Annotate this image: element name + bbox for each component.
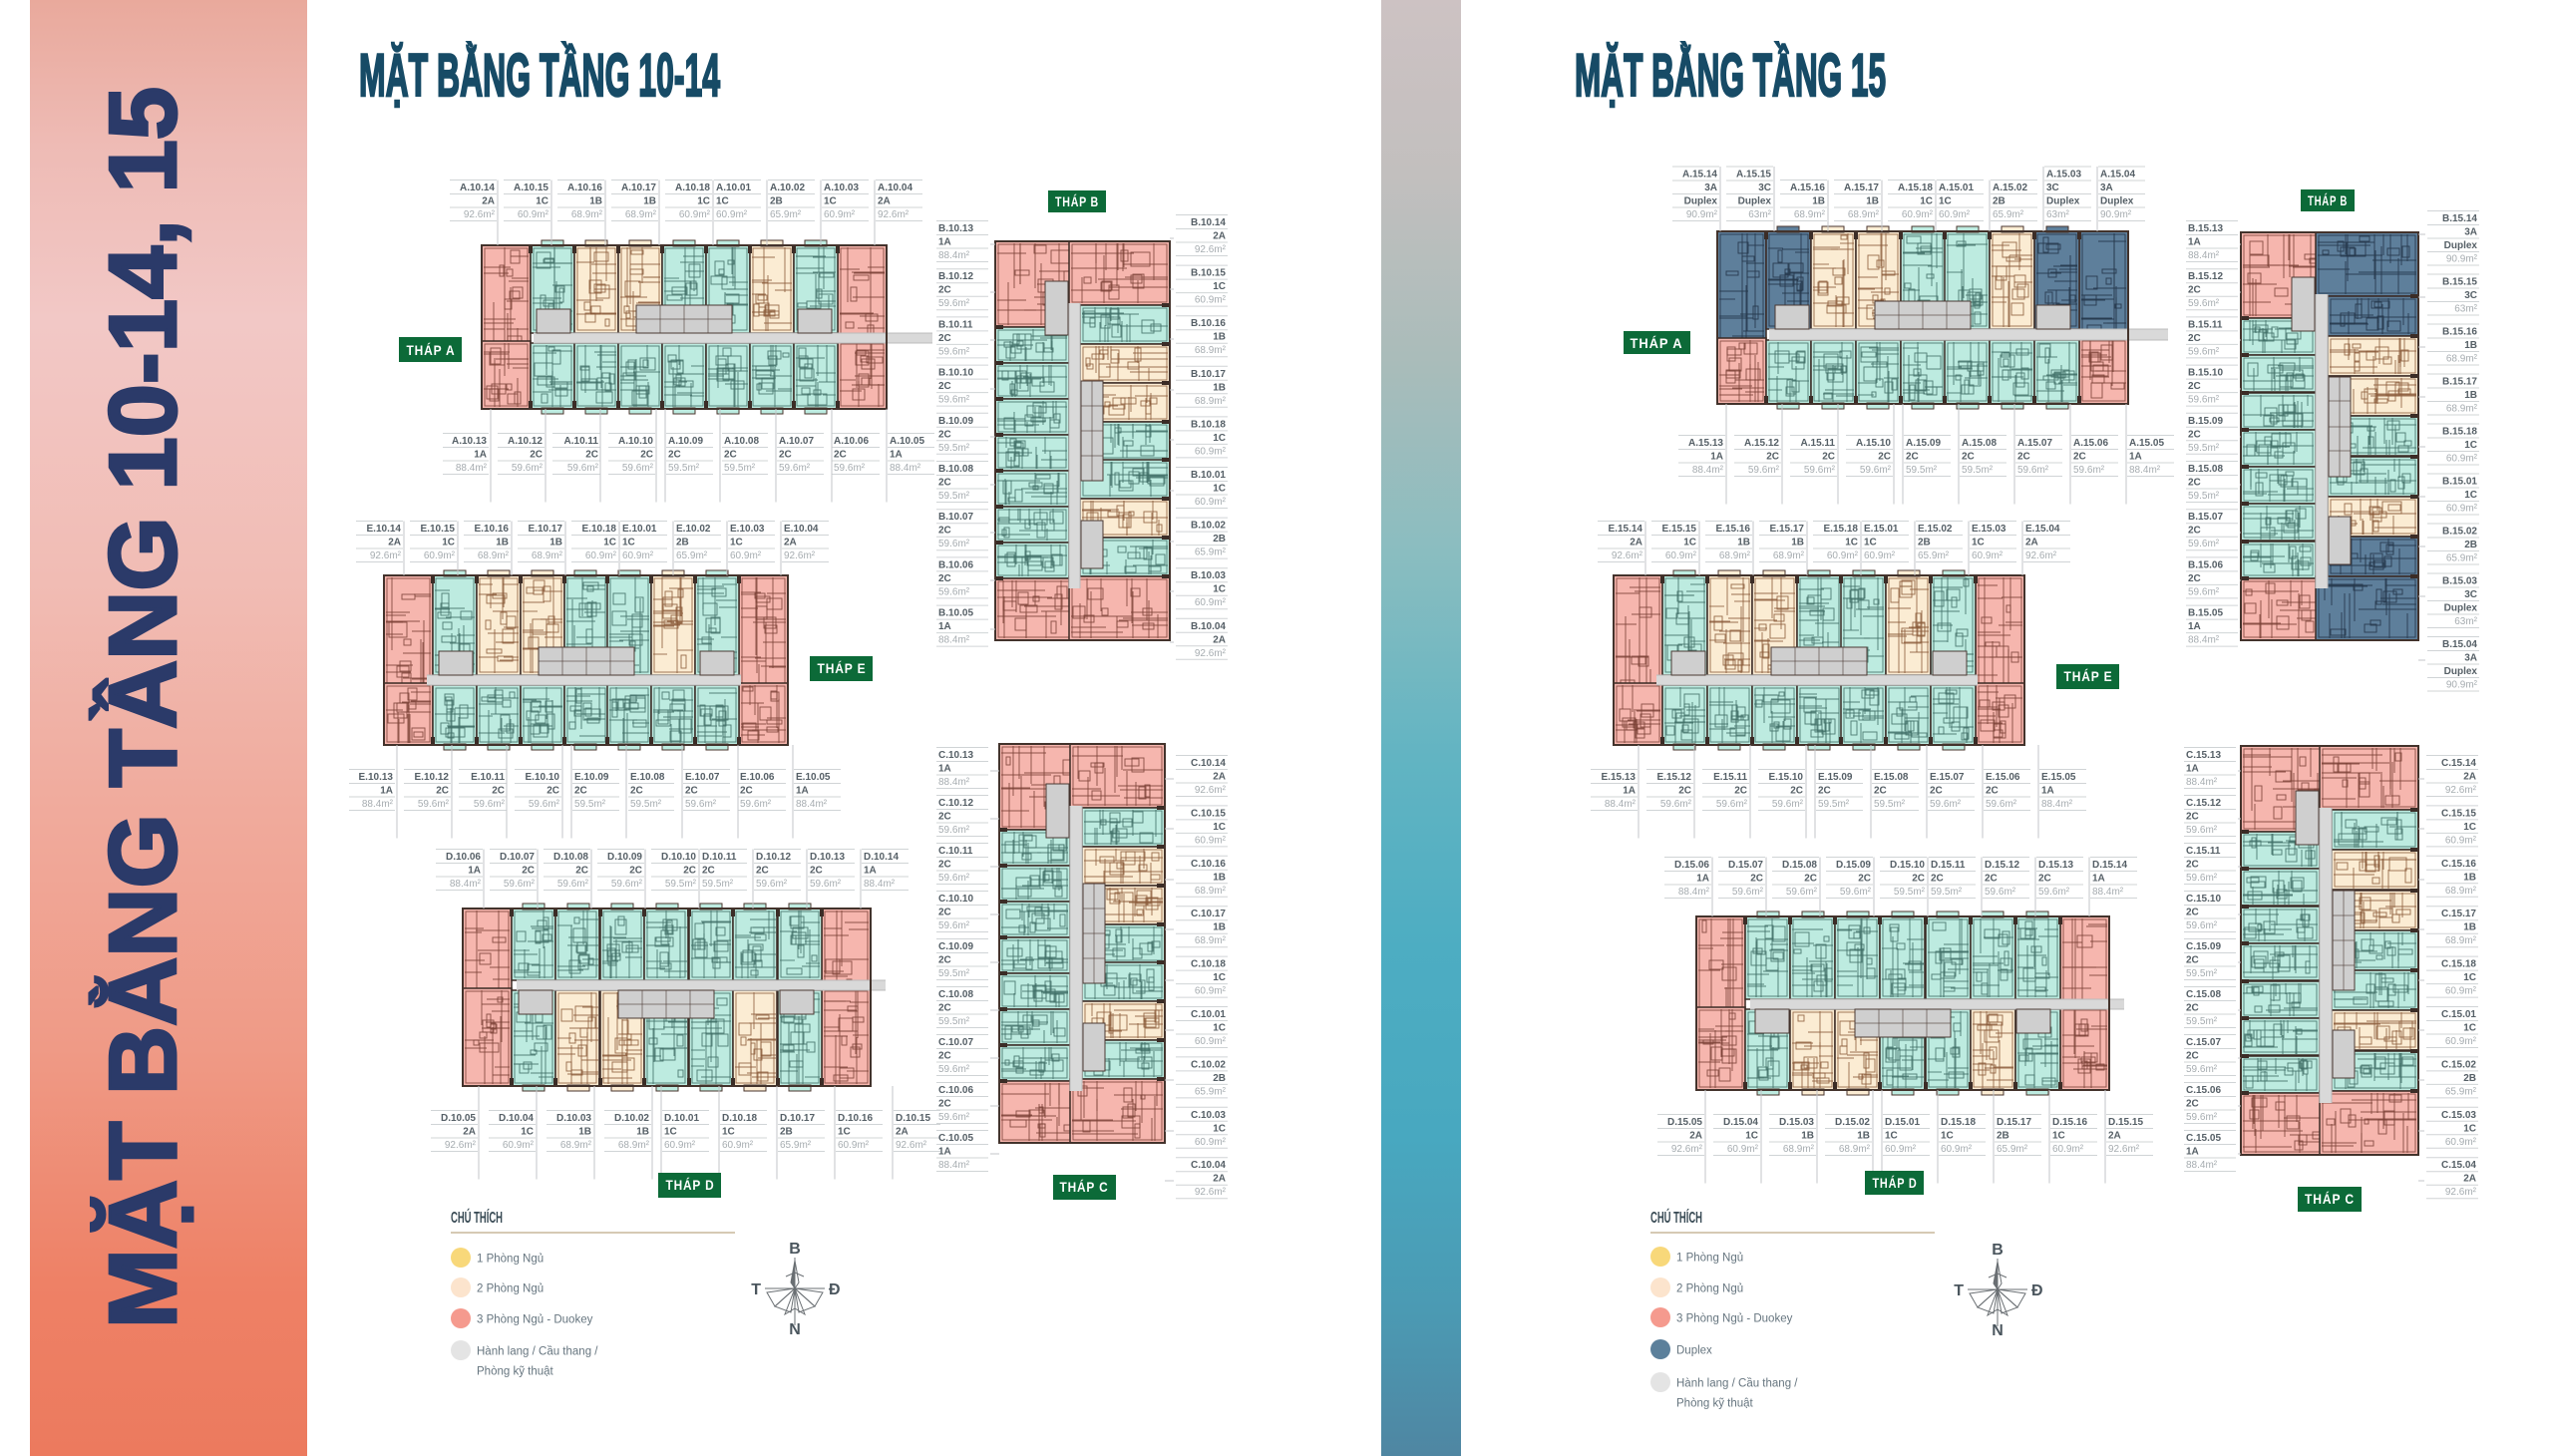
svg-text:1B: 1B bbox=[1213, 922, 1226, 933]
svg-text:E.10.13: E.10.13 bbox=[359, 772, 394, 783]
svg-text:60.9m²: 60.9m² bbox=[1864, 550, 1896, 561]
svg-text:60.9m²: 60.9m² bbox=[2052, 1144, 2084, 1155]
svg-text:3A: 3A bbox=[2100, 182, 2113, 193]
svg-text:1B: 1B bbox=[1866, 196, 1879, 207]
svg-text:A.15.08: A.15.08 bbox=[1962, 438, 1997, 449]
svg-text:2C: 2C bbox=[629, 866, 642, 877]
svg-text:59.6m²: 59.6m² bbox=[1732, 887, 1764, 898]
svg-text:60.9m²: 60.9m² bbox=[1195, 986, 1227, 997]
svg-text:A.15.06: A.15.06 bbox=[2073, 438, 2108, 449]
svg-text:A.10.16: A.10.16 bbox=[567, 182, 602, 193]
svg-text:1C: 1C bbox=[722, 1127, 735, 1138]
svg-text:68.9m²: 68.9m² bbox=[1839, 1144, 1871, 1155]
svg-text:A.15.12: A.15.12 bbox=[1744, 438, 1779, 449]
svg-text:D.15.18: D.15.18 bbox=[1941, 1117, 1976, 1128]
svg-text:2C: 2C bbox=[938, 908, 951, 918]
svg-text:3C: 3C bbox=[1758, 182, 1771, 193]
svg-text:59.6m²: 59.6m² bbox=[1748, 465, 1780, 476]
svg-text:59.6m²: 59.6m² bbox=[1985, 887, 2016, 898]
svg-text:A.15.14: A.15.14 bbox=[1682, 170, 1717, 181]
svg-text:59.6m²: 59.6m² bbox=[557, 879, 589, 890]
svg-text:E.10.12: E.10.12 bbox=[415, 772, 450, 783]
svg-text:59.5m²: 59.5m² bbox=[938, 968, 970, 979]
svg-text:1C: 1C bbox=[1213, 972, 1226, 983]
svg-text:59.5m²: 59.5m² bbox=[1818, 799, 1850, 810]
svg-text:E.15.02: E.15.02 bbox=[1918, 524, 1953, 535]
svg-text:59.6m²: 59.6m² bbox=[1786, 887, 1818, 898]
svg-text:2C: 2C bbox=[724, 450, 737, 461]
svg-text:A.15.13: A.15.13 bbox=[1688, 438, 1723, 449]
svg-text:59.6m²: 59.6m² bbox=[938, 1112, 970, 1123]
svg-text:2B: 2B bbox=[1918, 538, 1931, 548]
svg-text:88.4m²: 88.4m² bbox=[1605, 799, 1637, 810]
svg-text:2B: 2B bbox=[676, 538, 689, 548]
svg-text:68.9m²: 68.9m² bbox=[560, 1140, 592, 1151]
svg-text:68.9m²: 68.9m² bbox=[1794, 209, 1826, 220]
svg-text:B.10.11: B.10.11 bbox=[938, 319, 973, 330]
svg-text:1C: 1C bbox=[1213, 433, 1226, 444]
svg-text:59.6m²: 59.6m² bbox=[938, 873, 970, 884]
svg-text:E.15.09: E.15.09 bbox=[1818, 772, 1853, 783]
svg-text:1C: 1C bbox=[716, 196, 729, 207]
svg-text:D.15.10: D.15.10 bbox=[1890, 860, 1925, 871]
svg-text:E.15.12: E.15.12 bbox=[1657, 772, 1692, 783]
svg-text:60.9m²: 60.9m² bbox=[838, 1140, 870, 1151]
svg-text:C.10.18: C.10.18 bbox=[1191, 959, 1226, 970]
svg-text:2A: 2A bbox=[388, 538, 401, 548]
svg-text:2C: 2C bbox=[938, 429, 951, 440]
svg-text:59.5m²: 59.5m² bbox=[938, 443, 970, 454]
svg-text:1B: 1B bbox=[549, 538, 562, 548]
svg-text:90.9m²: 90.9m² bbox=[1686, 209, 1718, 220]
svg-text:D.10.04: D.10.04 bbox=[499, 1113, 534, 1124]
svg-text:1A: 1A bbox=[938, 621, 951, 632]
svg-text:E.10.05: E.10.05 bbox=[796, 772, 831, 783]
svg-text:1C: 1C bbox=[1920, 196, 1933, 207]
svg-text:D.10.15: D.10.15 bbox=[896, 1113, 930, 1124]
svg-text:B.10.14: B.10.14 bbox=[1191, 217, 1226, 228]
svg-text:2C: 2C bbox=[492, 786, 505, 797]
svg-text:2C: 2C bbox=[938, 955, 951, 966]
svg-text:59.5m²: 59.5m² bbox=[938, 1016, 970, 1027]
svg-text:92.6m²: 92.6m² bbox=[878, 209, 910, 220]
svg-text:D.15.11: D.15.11 bbox=[1931, 860, 1966, 871]
svg-text:2A: 2A bbox=[896, 1127, 909, 1138]
svg-text:59.6m²: 59.6m² bbox=[810, 879, 842, 890]
svg-text:1A: 1A bbox=[796, 786, 809, 797]
svg-text:92.6m²: 92.6m² bbox=[1195, 1187, 1227, 1198]
svg-text:2C: 2C bbox=[756, 866, 769, 877]
svg-text:60.9m²: 60.9m² bbox=[1902, 209, 1934, 220]
svg-text:C.10.01: C.10.01 bbox=[1191, 1009, 1226, 1020]
svg-text:1C: 1C bbox=[1213, 1023, 1226, 1034]
svg-text:2C: 2C bbox=[938, 812, 951, 823]
svg-text:2C: 2C bbox=[1818, 786, 1831, 797]
svg-text:63m²: 63m² bbox=[1748, 209, 1771, 220]
svg-text:65.9m²: 65.9m² bbox=[1195, 1086, 1227, 1097]
svg-text:A.10.10: A.10.10 bbox=[618, 436, 653, 447]
svg-text:C.10.08: C.10.08 bbox=[938, 989, 973, 1000]
svg-text:88.4m²: 88.4m² bbox=[2092, 887, 2124, 898]
svg-text:D.15.13: D.15.13 bbox=[2038, 860, 2073, 871]
svg-text:60.9m²: 60.9m² bbox=[1195, 1036, 1227, 1047]
svg-text:92.6m²: 92.6m² bbox=[464, 209, 496, 220]
svg-text:B.10.05: B.10.05 bbox=[938, 608, 973, 619]
svg-text:1C: 1C bbox=[1885, 1131, 1898, 1142]
svg-text:2C: 2C bbox=[1790, 786, 1803, 797]
svg-text:59.6m²: 59.6m² bbox=[567, 463, 599, 474]
svg-text:1A: 1A bbox=[468, 866, 481, 877]
svg-text:2C: 2C bbox=[530, 450, 543, 461]
svg-text:2C: 2C bbox=[2017, 452, 2030, 463]
svg-text:E.15.13: E.15.13 bbox=[1602, 772, 1637, 783]
svg-text:60.9m²: 60.9m² bbox=[503, 1140, 535, 1151]
svg-text:59.6m²: 59.6m² bbox=[938, 586, 970, 597]
svg-text:C.10.02: C.10.02 bbox=[1191, 1059, 1226, 1070]
svg-text:2A: 2A bbox=[482, 196, 495, 207]
svg-text:C.10.12: C.10.12 bbox=[938, 798, 973, 809]
svg-text:2C: 2C bbox=[938, 478, 951, 489]
svg-text:D.10.18: D.10.18 bbox=[722, 1113, 757, 1124]
svg-text:D.15.12: D.15.12 bbox=[1985, 860, 2019, 871]
svg-text:2C: 2C bbox=[779, 450, 792, 461]
svg-text:E.10.06: E.10.06 bbox=[740, 772, 775, 783]
svg-text:A.10.02: A.10.02 bbox=[770, 182, 805, 193]
svg-text:D.10.06: D.10.06 bbox=[446, 852, 481, 863]
svg-text:65.9m²: 65.9m² bbox=[676, 550, 708, 561]
svg-text:60.9m²: 60.9m² bbox=[1195, 446, 1227, 457]
svg-text:1B: 1B bbox=[589, 196, 602, 207]
svg-text:2C: 2C bbox=[668, 450, 681, 461]
svg-text:1C: 1C bbox=[697, 196, 710, 207]
svg-text:59.5m²: 59.5m² bbox=[1874, 799, 1906, 810]
svg-text:59.6m²: 59.6m² bbox=[1986, 799, 2017, 810]
svg-text:E.15.01: E.15.01 bbox=[1864, 524, 1899, 535]
svg-text:E.10.07: E.10.07 bbox=[685, 772, 720, 783]
svg-text:E.10.14: E.10.14 bbox=[367, 524, 402, 535]
svg-text:1A: 1A bbox=[864, 866, 877, 877]
svg-text:59.6m²: 59.6m² bbox=[1660, 799, 1692, 810]
svg-text:B.10.18: B.10.18 bbox=[1191, 419, 1226, 430]
svg-text:C.10.17: C.10.17 bbox=[1191, 909, 1226, 919]
svg-text:59.5m²: 59.5m² bbox=[1962, 465, 1994, 476]
svg-text:MẶT BẰNG TẦNG 15: MẶT BẰNG TẦNG 15 bbox=[1575, 42, 1886, 109]
svg-text:A.10.01: A.10.01 bbox=[716, 182, 751, 193]
svg-text:88.4m²: 88.4m² bbox=[796, 799, 828, 810]
svg-text:E.10.15: E.10.15 bbox=[421, 524, 456, 535]
svg-text:A.15.18: A.15.18 bbox=[1898, 182, 1933, 193]
svg-text:D.15.17: D.15.17 bbox=[1997, 1117, 2031, 1128]
svg-text:2C: 2C bbox=[1906, 452, 1919, 463]
svg-text:1B: 1B bbox=[1857, 1131, 1870, 1142]
svg-text:1B: 1B bbox=[1801, 1131, 1814, 1142]
svg-text:D.10.11: D.10.11 bbox=[702, 852, 737, 863]
svg-text:60.9m²: 60.9m² bbox=[722, 1140, 754, 1151]
svg-text:2C: 2C bbox=[685, 786, 698, 797]
svg-text:B.10.17: B.10.17 bbox=[1191, 369, 1226, 380]
svg-text:C.10.07: C.10.07 bbox=[938, 1037, 973, 1048]
svg-text:C.10.10: C.10.10 bbox=[938, 894, 973, 905]
svg-text:65.9m²: 65.9m² bbox=[1918, 550, 1950, 561]
svg-text:1C: 1C bbox=[536, 196, 548, 207]
svg-text:88.4m²: 88.4m² bbox=[864, 879, 896, 890]
svg-text:59.6m²: 59.6m² bbox=[756, 879, 788, 890]
svg-text:C.10.15: C.10.15 bbox=[1191, 808, 1226, 819]
svg-text:2C: 2C bbox=[938, 333, 951, 344]
svg-text:2A: 2A bbox=[1213, 231, 1226, 242]
svg-text:60.9m²: 60.9m² bbox=[1827, 550, 1859, 561]
svg-text:B.10.16: B.10.16 bbox=[1191, 318, 1226, 329]
svg-text:68.9m²: 68.9m² bbox=[625, 209, 657, 220]
svg-text:2C: 2C bbox=[938, 1003, 951, 1014]
svg-text:2C: 2C bbox=[630, 786, 643, 797]
svg-text:1B: 1B bbox=[1737, 538, 1750, 548]
svg-text:92.6m²: 92.6m² bbox=[1195, 648, 1227, 659]
svg-text:2C: 2C bbox=[938, 381, 951, 392]
svg-text:A.15.07: A.15.07 bbox=[2017, 438, 2052, 449]
svg-text:D.15.06: D.15.06 bbox=[1674, 860, 1709, 871]
svg-text:1B: 1B bbox=[1213, 382, 1226, 393]
svg-text:2C: 2C bbox=[547, 786, 559, 797]
svg-text:1C: 1C bbox=[622, 538, 635, 548]
svg-text:1C: 1C bbox=[824, 196, 837, 207]
svg-text:A.10.06: A.10.06 bbox=[834, 436, 869, 447]
svg-text:D.10.09: D.10.09 bbox=[607, 852, 642, 863]
svg-text:92.6m²: 92.6m² bbox=[370, 550, 402, 561]
svg-text:E.10.04: E.10.04 bbox=[784, 524, 819, 535]
svg-text:88.4m²: 88.4m² bbox=[938, 635, 970, 646]
svg-text:59.6m²: 59.6m² bbox=[685, 799, 717, 810]
svg-text:1A: 1A bbox=[2129, 452, 2142, 463]
svg-text:2C: 2C bbox=[1985, 874, 1998, 885]
svg-text:3A: 3A bbox=[1704, 182, 1717, 193]
svg-text:D.10.10: D.10.10 bbox=[661, 852, 696, 863]
svg-text:2C: 2C bbox=[574, 786, 587, 797]
svg-text:68.9m²: 68.9m² bbox=[1195, 935, 1227, 946]
svg-text:88.4m²: 88.4m² bbox=[1678, 887, 1710, 898]
svg-text:1A: 1A bbox=[938, 764, 951, 775]
svg-text:D.10.16: D.10.16 bbox=[838, 1113, 873, 1124]
svg-text:B.10.01: B.10.01 bbox=[1191, 470, 1226, 481]
svg-text:D.15.07: D.15.07 bbox=[1728, 860, 1763, 871]
svg-text:A.15.16: A.15.16 bbox=[1790, 182, 1825, 193]
svg-text:E.10.16: E.10.16 bbox=[475, 524, 510, 535]
svg-text:B.10.04: B.10.04 bbox=[1191, 621, 1226, 632]
svg-text:1C: 1C bbox=[664, 1127, 677, 1138]
svg-text:C.10.05: C.10.05 bbox=[938, 1133, 973, 1144]
svg-text:E.10.08: E.10.08 bbox=[630, 772, 665, 783]
svg-text:A.15.05: A.15.05 bbox=[2129, 438, 2164, 449]
svg-text:59.6m²: 59.6m² bbox=[779, 463, 811, 474]
svg-text:D.15.15: D.15.15 bbox=[2108, 1117, 2143, 1128]
svg-text:60.9m²: 60.9m² bbox=[1195, 497, 1227, 508]
svg-text:59.6m²: 59.6m² bbox=[1716, 799, 1748, 810]
svg-text:1C: 1C bbox=[442, 538, 455, 548]
svg-text:1B: 1B bbox=[636, 1127, 649, 1138]
svg-text:60.9m²: 60.9m² bbox=[1195, 295, 1227, 306]
svg-text:59.5m²: 59.5m² bbox=[1906, 465, 1938, 476]
svg-text:A.10.18: A.10.18 bbox=[675, 182, 710, 193]
svg-text:2C: 2C bbox=[1874, 786, 1887, 797]
svg-text:1C: 1C bbox=[1939, 196, 1952, 207]
svg-text:60.9m²: 60.9m² bbox=[622, 550, 654, 561]
svg-text:C.10.06: C.10.06 bbox=[938, 1085, 973, 1096]
svg-text:E.10.10: E.10.10 bbox=[526, 772, 560, 783]
svg-text:A.10.11: A.10.11 bbox=[564, 436, 599, 447]
svg-text:E.10.09: E.10.09 bbox=[574, 772, 609, 783]
svg-text:2C: 2C bbox=[575, 866, 588, 877]
svg-text:1C: 1C bbox=[1745, 1131, 1758, 1142]
svg-text:B.10.15: B.10.15 bbox=[1191, 268, 1226, 279]
svg-text:2A: 2A bbox=[878, 196, 891, 207]
svg-text:2C: 2C bbox=[2038, 874, 2051, 885]
svg-text:2B: 2B bbox=[1213, 534, 1226, 545]
svg-text:D.10.07: D.10.07 bbox=[500, 852, 535, 863]
svg-text:B.10.10: B.10.10 bbox=[938, 368, 973, 379]
svg-text:2C: 2C bbox=[640, 450, 653, 461]
svg-text:60.9m²: 60.9m² bbox=[518, 209, 549, 220]
svg-text:59.6m²: 59.6m² bbox=[622, 463, 654, 474]
svg-text:E.15.18: E.15.18 bbox=[1824, 524, 1859, 535]
svg-text:E.10.11: E.10.11 bbox=[471, 772, 505, 783]
svg-text:C.10.13: C.10.13 bbox=[938, 750, 973, 761]
svg-text:88.4m²: 88.4m² bbox=[890, 463, 921, 474]
svg-text:65.9m²: 65.9m² bbox=[1997, 1144, 2028, 1155]
svg-text:B.10.03: B.10.03 bbox=[1191, 570, 1226, 581]
svg-text:1A: 1A bbox=[938, 1147, 951, 1158]
svg-text:68.9m²: 68.9m² bbox=[532, 550, 563, 561]
svg-text:60.9m²: 60.9m² bbox=[1195, 835, 1227, 846]
svg-text:2C: 2C bbox=[2073, 452, 2086, 463]
svg-text:Duplex: Duplex bbox=[2100, 196, 2134, 207]
svg-text:D.10.13: D.10.13 bbox=[810, 852, 845, 863]
svg-text:E.15.03: E.15.03 bbox=[1972, 524, 2006, 535]
svg-text:1C: 1C bbox=[1213, 1123, 1226, 1134]
svg-text:2C: 2C bbox=[1734, 786, 1747, 797]
svg-text:88.4m²: 88.4m² bbox=[938, 250, 970, 261]
svg-text:92.6m²: 92.6m² bbox=[445, 1140, 477, 1151]
svg-text:59.6m²: 59.6m² bbox=[938, 298, 970, 309]
svg-text:A.10.04: A.10.04 bbox=[878, 182, 912, 193]
svg-text:2C: 2C bbox=[585, 450, 598, 461]
svg-text:D.10.12: D.10.12 bbox=[756, 852, 791, 863]
svg-text:D.15.05: D.15.05 bbox=[1667, 1117, 1702, 1128]
svg-text:63m²: 63m² bbox=[2046, 209, 2069, 220]
svg-text:3C: 3C bbox=[2046, 182, 2059, 193]
svg-text:60.9m²: 60.9m² bbox=[1665, 550, 1697, 561]
svg-text:A.15.03: A.15.03 bbox=[2046, 170, 2081, 181]
svg-text:1B: 1B bbox=[1213, 332, 1226, 343]
svg-text:1C: 1C bbox=[1213, 584, 1226, 595]
svg-text:59.6m²: 59.6m² bbox=[1840, 887, 1872, 898]
svg-text:A.10.14: A.10.14 bbox=[460, 182, 495, 193]
svg-text:D.10.01: D.10.01 bbox=[664, 1113, 699, 1124]
svg-text:E.15.14: E.15.14 bbox=[1609, 524, 1643, 535]
svg-text:1A: 1A bbox=[474, 450, 487, 461]
svg-text:59.5m²: 59.5m² bbox=[702, 879, 734, 890]
svg-text:1B: 1B bbox=[496, 538, 509, 548]
svg-text:2C: 2C bbox=[1912, 874, 1925, 885]
svg-text:A.15.09: A.15.09 bbox=[1906, 438, 1941, 449]
svg-text:92.6m²: 92.6m² bbox=[1195, 785, 1227, 796]
svg-text:1A: 1A bbox=[2041, 786, 2054, 797]
svg-text:88.4m²: 88.4m² bbox=[938, 1160, 970, 1171]
svg-text:Duplex: Duplex bbox=[1684, 196, 1718, 207]
svg-text:59.6m²: 59.6m² bbox=[938, 825, 970, 836]
svg-text:D.10.05: D.10.05 bbox=[441, 1113, 476, 1124]
svg-text:E.15.08: E.15.08 bbox=[1874, 772, 1909, 783]
svg-text:2C: 2C bbox=[810, 866, 823, 877]
svg-text:2C: 2C bbox=[1858, 874, 1871, 885]
svg-text:E.15.17: E.15.17 bbox=[1770, 524, 1805, 535]
svg-text:A.15.04: A.15.04 bbox=[2100, 170, 2135, 181]
svg-text:Duplex: Duplex bbox=[1738, 196, 1772, 207]
svg-text:88.4m²: 88.4m² bbox=[362, 799, 394, 810]
svg-text:2C: 2C bbox=[834, 450, 847, 461]
svg-text:92.6m²: 92.6m² bbox=[1612, 550, 1643, 561]
svg-text:2C: 2C bbox=[938, 1051, 951, 1062]
svg-text:D.10.17: D.10.17 bbox=[780, 1113, 815, 1124]
svg-text:60.9m²: 60.9m² bbox=[679, 209, 711, 220]
svg-text:B.10.07: B.10.07 bbox=[938, 512, 973, 523]
svg-text:A.10.15: A.10.15 bbox=[514, 182, 548, 193]
svg-text:2C: 2C bbox=[938, 573, 951, 584]
svg-text:C.10.03: C.10.03 bbox=[1191, 1110, 1226, 1121]
svg-text:E.10.03: E.10.03 bbox=[730, 524, 765, 535]
svg-text:60.9m²: 60.9m² bbox=[1939, 209, 1971, 220]
svg-text:C.10.16: C.10.16 bbox=[1191, 859, 1226, 870]
svg-text:60.9m²: 60.9m² bbox=[730, 550, 762, 561]
svg-text:A.10.12: A.10.12 bbox=[508, 436, 543, 447]
svg-text:D.15.04: D.15.04 bbox=[1723, 1117, 1758, 1128]
svg-text:1B: 1B bbox=[643, 196, 656, 207]
svg-text:1B: 1B bbox=[1213, 872, 1226, 883]
svg-text:E.15.16: E.15.16 bbox=[1716, 524, 1751, 535]
svg-text:65.9m²: 65.9m² bbox=[1993, 209, 2024, 220]
svg-text:E.15.05: E.15.05 bbox=[2041, 772, 2076, 783]
svg-text:2B: 2B bbox=[1213, 1073, 1226, 1084]
svg-text:59.6m²: 59.6m² bbox=[938, 1064, 970, 1075]
svg-text:1C: 1C bbox=[730, 538, 743, 548]
svg-text:E.15.15: E.15.15 bbox=[1662, 524, 1697, 535]
svg-text:60.9m²: 60.9m² bbox=[585, 550, 617, 561]
svg-text:1C: 1C bbox=[1972, 538, 1985, 548]
svg-text:A.15.10: A.15.10 bbox=[1856, 438, 1891, 449]
svg-text:C.10.09: C.10.09 bbox=[938, 941, 973, 952]
svg-text:92.6m²: 92.6m² bbox=[2108, 1144, 2140, 1155]
svg-text:1C: 1C bbox=[1213, 281, 1226, 292]
svg-text:E.15.10: E.15.10 bbox=[1769, 772, 1804, 783]
svg-text:1A: 1A bbox=[1710, 452, 1723, 463]
svg-text:2C: 2C bbox=[1750, 874, 1763, 885]
svg-text:59.6m²: 59.6m² bbox=[1860, 465, 1892, 476]
svg-text:60.9m²: 60.9m² bbox=[1972, 550, 2004, 561]
svg-text:65.9m²: 65.9m² bbox=[780, 1140, 812, 1151]
svg-text:B.10.06: B.10.06 bbox=[938, 559, 973, 570]
svg-text:2C: 2C bbox=[1822, 452, 1835, 463]
svg-text:59.6m²: 59.6m² bbox=[2017, 465, 2049, 476]
svg-text:60.9m²: 60.9m² bbox=[1727, 1144, 1759, 1155]
svg-text:59.6m²: 59.6m² bbox=[938, 920, 970, 931]
svg-text:59.6m²: 59.6m² bbox=[611, 879, 643, 890]
svg-text:59.5m²: 59.5m² bbox=[668, 463, 700, 474]
svg-text:68.9m²: 68.9m² bbox=[1783, 1144, 1815, 1155]
svg-text:B.10.09: B.10.09 bbox=[938, 416, 973, 427]
svg-text:2C: 2C bbox=[938, 860, 951, 871]
svg-text:1A: 1A bbox=[1623, 786, 1636, 797]
svg-text:B.10.13: B.10.13 bbox=[938, 223, 973, 234]
svg-text:D.10.08: D.10.08 bbox=[553, 852, 588, 863]
